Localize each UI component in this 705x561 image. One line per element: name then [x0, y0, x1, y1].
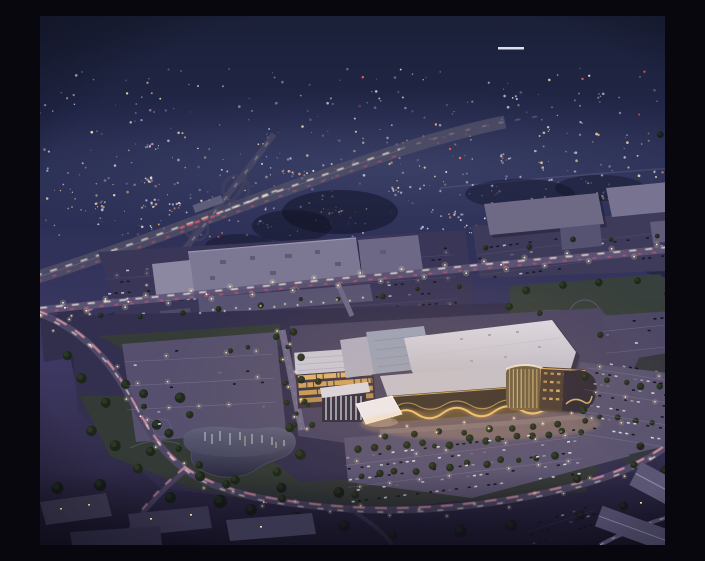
- aerial-night-rendering-image: [40, 16, 665, 545]
- vignette: [40, 16, 665, 545]
